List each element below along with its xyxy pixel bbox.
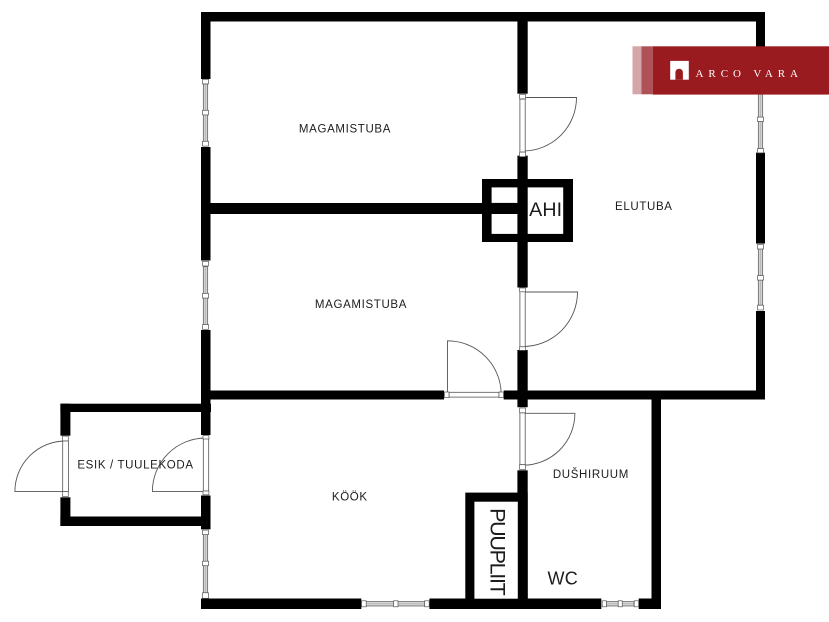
svg-text:AHI: AHI — [529, 199, 562, 221]
svg-text:KÖÖK: KÖÖK — [332, 491, 368, 503]
svg-text:ARCO VARA: ARCO VARA — [696, 68, 799, 80]
svg-text:DUŠHIRUUM: DUŠHIRUUM — [553, 468, 629, 481]
svg-text:WC: WC — [548, 569, 578, 589]
svg-text:ESIK / TUULEKODA: ESIK / TUULEKODA — [77, 460, 193, 472]
svg-text:ELUTUBA: ELUTUBA — [615, 201, 673, 213]
svg-text:PUUPLIIT: PUUPLIIT — [486, 508, 510, 596]
svg-text:MAGAMISTUBA: MAGAMISTUBA — [299, 123, 391, 135]
svg-text:MAGAMISTUBA: MAGAMISTUBA — [315, 299, 407, 311]
